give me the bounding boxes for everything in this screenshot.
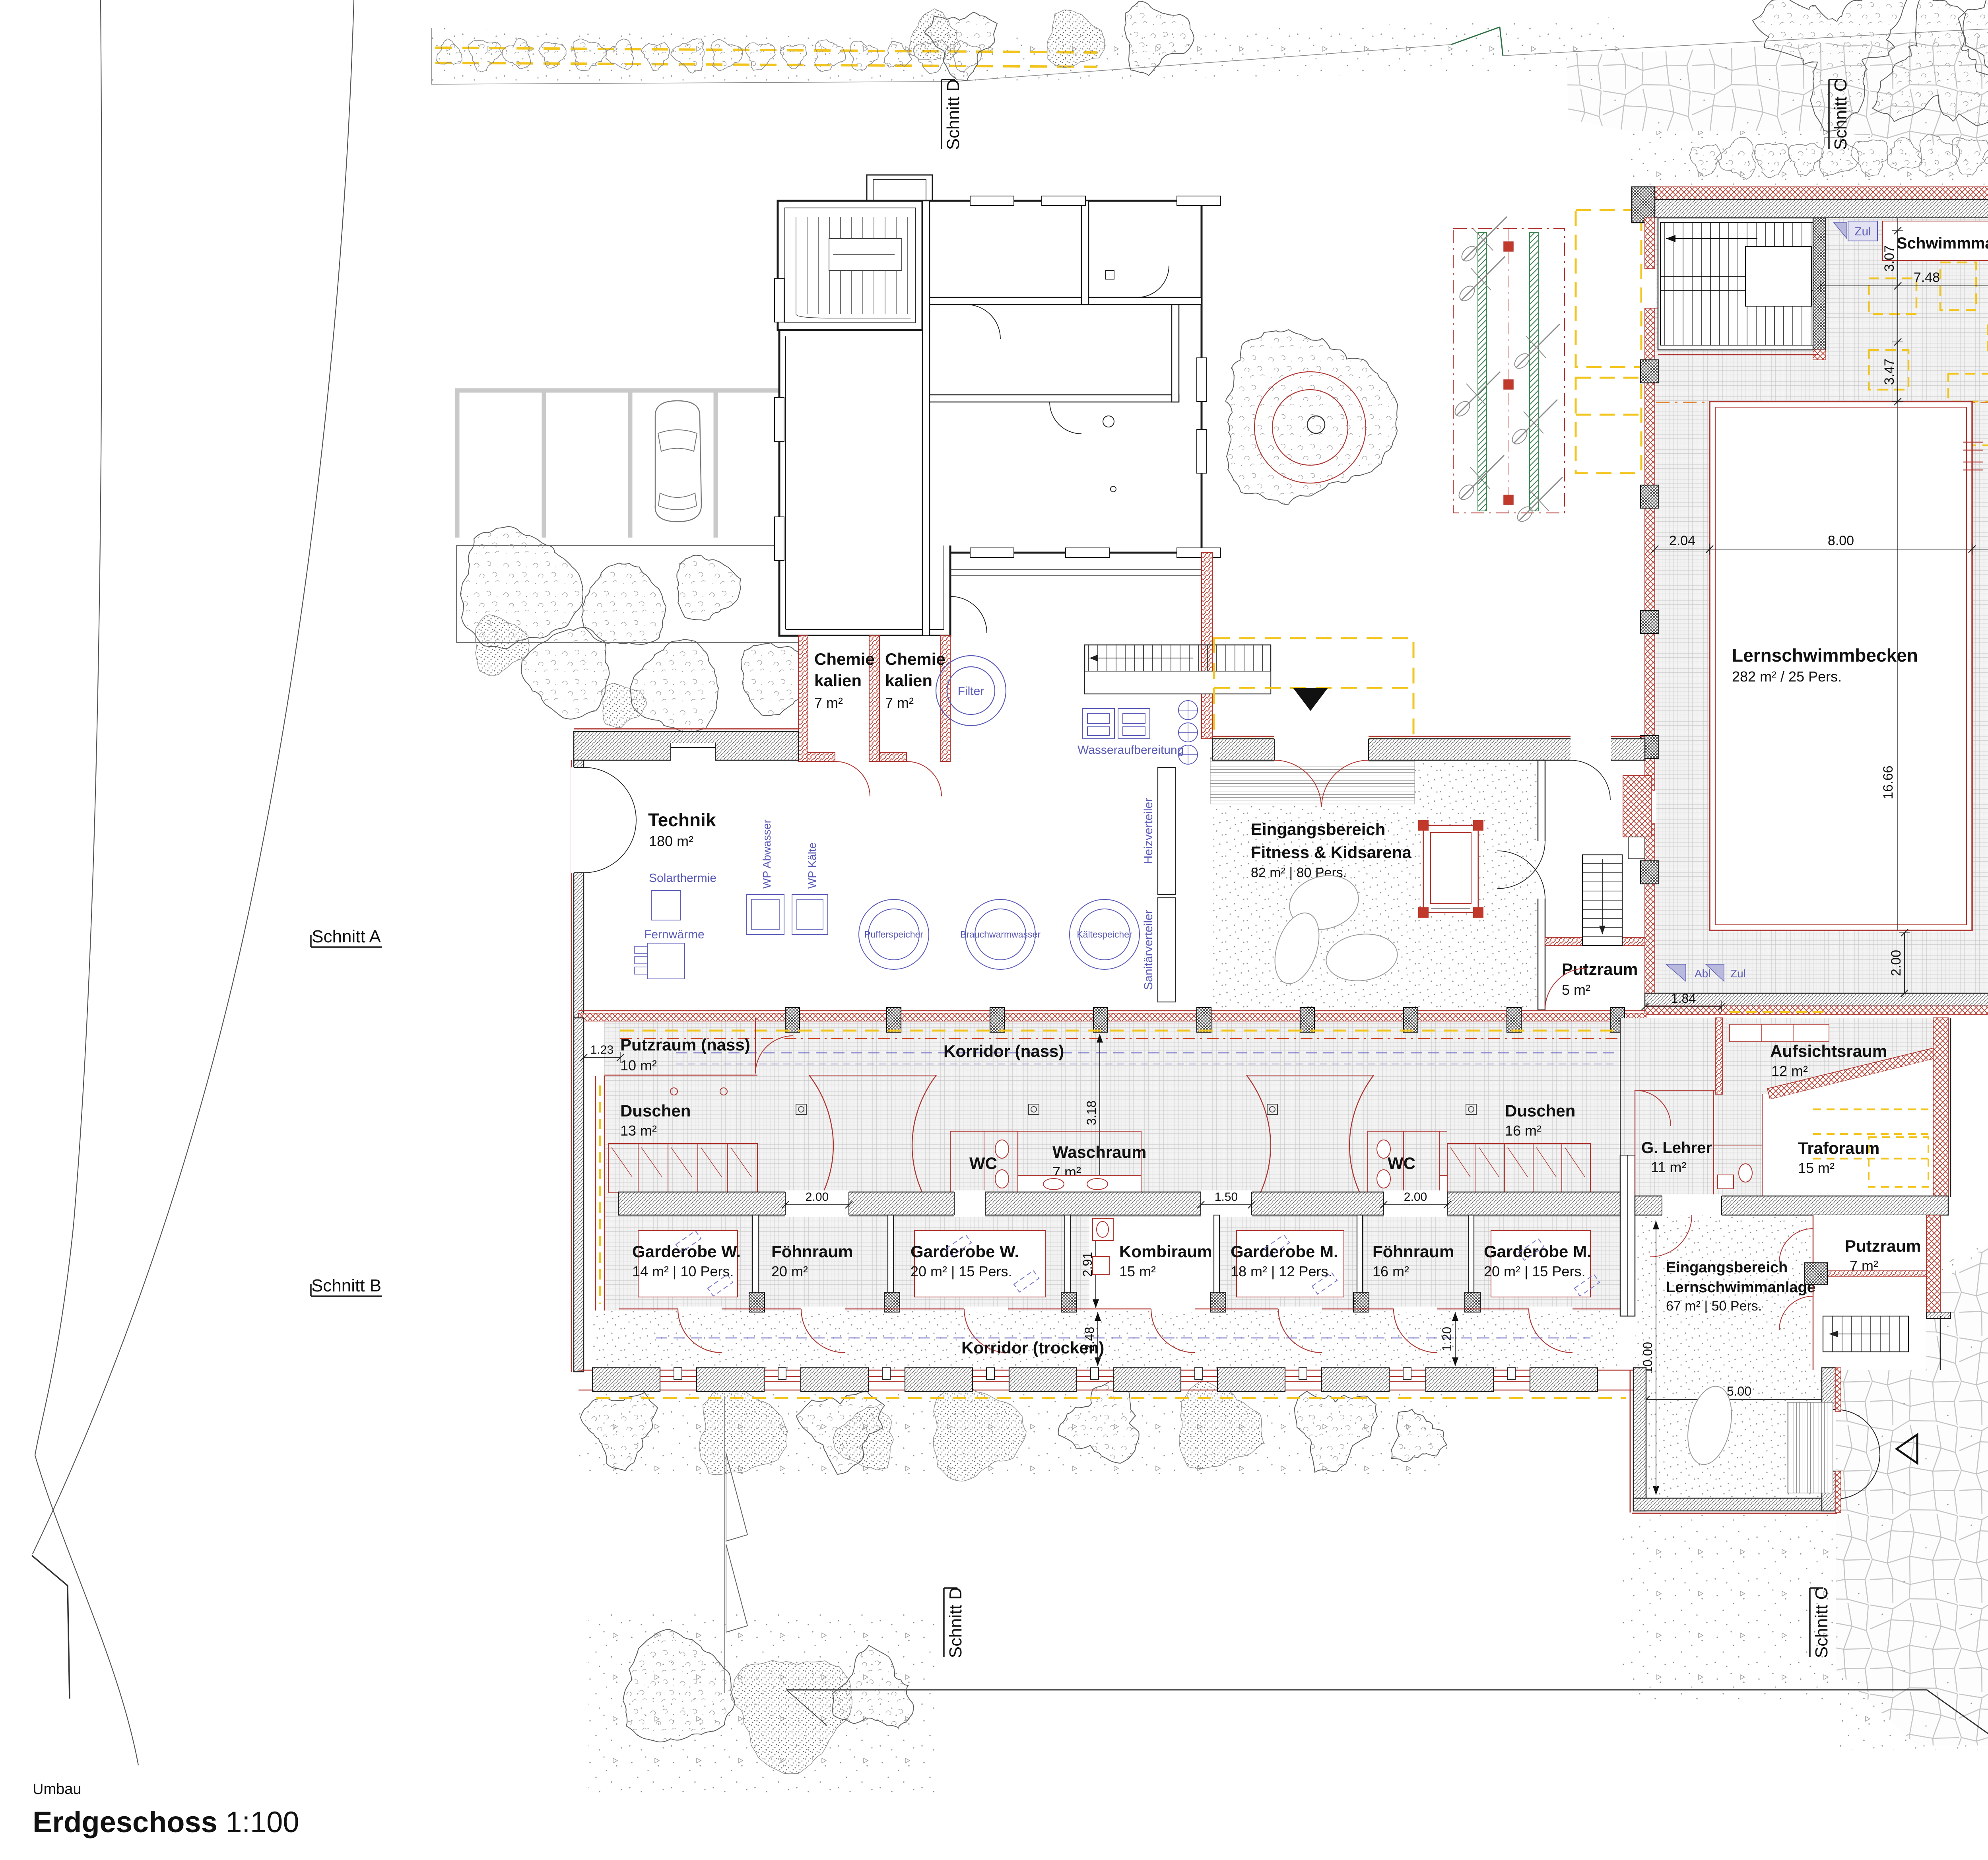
svg-text:Duschen: Duschen [620,1101,691,1120]
svg-text:Kältespeicher: Kältespeicher [1077,929,1132,940]
svg-text:Technik: Technik [648,810,716,830]
svg-text:Schnitt C: Schnitt C [1831,79,1850,150]
svg-text:Eingangsbereich: Eingangsbereich [1251,820,1385,839]
svg-text:kalien: kalien [814,671,862,690]
svg-text:180 m²: 180 m² [649,833,693,849]
svg-text:10 m²: 10 m² [620,1057,657,1074]
svg-text:2.00: 2.00 [1404,1190,1427,1204]
svg-text:Aufsichtsraum: Aufsichtsraum [1770,1042,1887,1060]
svg-text:Zul: Zul [1730,967,1746,980]
svg-text:3.18: 3.18 [1084,1101,1099,1125]
svg-text:Traforaum: Traforaum [1798,1139,1879,1157]
svg-text:Garderobe M.: Garderobe M. [1484,1242,1592,1261]
svg-text:Brauchwarmwasser: Brauchwarmwasser [960,929,1041,940]
svg-text:WP Kälte: WP Kälte [806,843,818,889]
svg-text:13 m²: 13 m² [620,1122,657,1139]
svg-text:8.00: 8.00 [1828,533,1854,548]
svg-text:2.00: 2.00 [1889,950,1904,976]
svg-text:11 m²: 11 m² [1651,1159,1686,1175]
svg-text:Eingangsbereich: Eingangsbereich [1666,1259,1788,1276]
svg-text:Waschraum: Waschraum [1052,1143,1147,1161]
svg-text:12 m²: 12 m² [1771,1063,1808,1079]
svg-text:Schnitt D: Schnitt D [944,79,963,150]
svg-text:Schnitt D: Schnitt D [946,1587,965,1658]
svg-text:3.47: 3.47 [1882,359,1897,385]
svg-text:Putzraum (nass): Putzraum (nass) [620,1035,750,1054]
svg-text:16 m²: 16 m² [1505,1122,1541,1139]
svg-text:Lernschwimmanlage: Lernschwimmanlage [1666,1279,1815,1296]
svg-text:Garderobe M.: Garderobe M. [1231,1242,1338,1261]
svg-text:5 m²: 5 m² [1562,982,1590,998]
svg-text:16.66: 16.66 [1881,765,1896,799]
svg-text:7.48: 7.48 [1914,270,1940,285]
svg-text:Chemie: Chemie [885,650,945,668]
svg-text:Schnitt A: Schnitt A [312,927,381,946]
svg-text:15 m²: 15 m² [1798,1160,1835,1176]
svg-text:WP Abwasser: WP Abwasser [761,819,773,889]
svg-text:1.50: 1.50 [1215,1190,1238,1204]
svg-text:7 m²: 7 m² [885,695,914,711]
svg-text:WC: WC [969,1154,997,1173]
svg-text:Filter: Filter [958,685,984,698]
svg-text:2.48: 2.48 [1082,1327,1097,1351]
svg-text:Duschen: Duschen [1505,1101,1575,1120]
svg-text:Putzraum: Putzraum [1845,1237,1921,1255]
svg-text:Pufferspeicher: Pufferspeicher [864,929,923,940]
svg-text:14 m² | 10 Pers.: 14 m² | 10 Pers. [632,1263,734,1279]
svg-text:2.04: 2.04 [1669,533,1695,548]
svg-text:20 m² | 15 Pers.: 20 m² | 15 Pers. [911,1263,1012,1279]
svg-text:Solarthermie: Solarthermie [649,872,716,885]
svg-text:7 m²: 7 m² [814,695,843,711]
svg-text:Abl: Abl [1695,967,1710,980]
svg-text:Fernwärme: Fernwärme [644,928,705,941]
svg-text:Garderobe W.: Garderobe W. [911,1242,1019,1261]
svg-text:Föhnraum: Föhnraum [1373,1242,1454,1261]
svg-text:Garderobe W.: Garderobe W. [632,1242,741,1261]
svg-text:18 m² | 12 Pers.: 18 m² | 12 Pers. [1231,1263,1332,1279]
svg-text:Kombiraum: Kombiraum [1119,1242,1212,1261]
svg-text:Schnitt C: Schnitt C [1812,1587,1831,1658]
svg-text:Chemie: Chemie [814,650,875,668]
svg-text:Föhnraum: Föhnraum [771,1242,853,1261]
svg-text:16 m²: 16 m² [1373,1263,1409,1279]
svg-text:G. Lehrer: G. Lehrer [1641,1139,1712,1157]
svg-text:15 m²: 15 m² [1119,1263,1156,1279]
svg-text:20 m² | 15 Pers.: 20 m² | 15 Pers. [1484,1263,1585,1279]
svg-text:Umbau: Umbau [33,1781,82,1798]
svg-text:1.84: 1.84 [1671,991,1696,1006]
svg-text:Putzraum: Putzraum [1562,960,1638,979]
svg-text:3.07: 3.07 [1882,245,1897,272]
svg-text:Zul: Zul [1854,225,1871,238]
svg-text:Erdgeschoss 1:100: Erdgeschoss 1:100 [33,1806,299,1839]
svg-text:Korridor (nass): Korridor (nass) [944,1042,1064,1060]
svg-text:Heizverteiler: Heizverteiler [1142,798,1155,864]
svg-text:kalien: kalien [885,671,932,690]
svg-text:67 m² | 50 Pers.: 67 m² | 50 Pers. [1666,1299,1762,1314]
svg-text:1.20: 1.20 [1440,1327,1454,1351]
svg-text:2.00: 2.00 [806,1190,829,1204]
svg-text:Sanitärverteiler: Sanitärverteiler [1142,910,1155,990]
svg-text:Fitness & Kidsarena: Fitness & Kidsarena [1251,843,1411,862]
svg-text:20 m²: 20 m² [771,1263,808,1279]
svg-text:Wasseraufbereitung: Wasseraufbereitung [1077,744,1184,757]
svg-text:Schnitt B: Schnitt B [311,1276,381,1295]
svg-text:WC: WC [1388,1154,1415,1173]
svg-text:Lernschwimmbecken: Lernschwimmbecken [1732,645,1918,666]
svg-text:1.23: 1.23 [590,1043,613,1056]
svg-text:Schwimmmaterial: Schwimmmaterial [1897,235,1988,252]
svg-text:282 m² / 25 Pers.: 282 m² / 25 Pers. [1732,668,1842,685]
